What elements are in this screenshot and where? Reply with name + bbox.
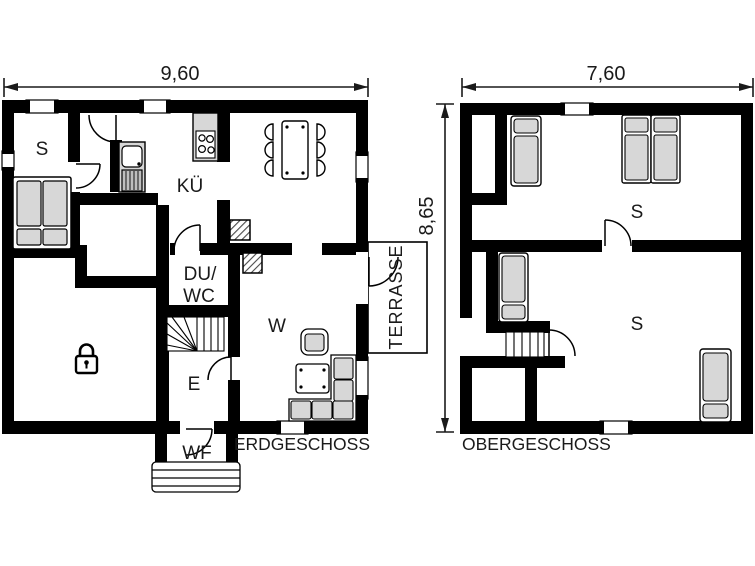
eg-width-label: 9,60 — [161, 63, 200, 85]
chair-icon — [265, 124, 273, 140]
floor-plan-svg: 9,60 8,65 — [0, 0, 755, 566]
living-furniture — [289, 329, 356, 421]
window-living-bottom — [277, 421, 308, 434]
chair-icon — [265, 142, 273, 158]
label-living: W — [268, 316, 286, 337]
window-bedroom-left — [2, 151, 14, 170]
chair-icon — [317, 160, 325, 176]
window-dining-right — [356, 152, 368, 182]
label-bedroom-eg: S — [36, 139, 49, 160]
label-windbreak: WF — [182, 443, 212, 464]
stairs-eg — [167, 317, 224, 351]
window-og-bottom — [600, 421, 632, 434]
obergeschoss-plan: 7,60 — [460, 63, 753, 454]
single-bed-right — [700, 349, 731, 422]
single-bed-niche — [511, 116, 541, 186]
floor-plan-image: 9,60 8,65 — [0, 0, 755, 566]
label-terrace: TERRASSE — [386, 244, 406, 349]
window-bedroom-top — [26, 100, 58, 113]
window-living-right — [356, 357, 368, 399]
door-og-bedrooms — [602, 220, 632, 252]
padlock-icon — [76, 345, 97, 373]
double-bed-eg — [13, 177, 71, 249]
door-shower-wc — [174, 225, 200, 251]
entry-steps — [152, 462, 240, 492]
height-label: 8,65 — [416, 197, 438, 236]
coffee-table — [296, 364, 329, 393]
double-bed-og — [622, 115, 680, 183]
window-og-top — [561, 103, 593, 115]
og-width-label: 7,60 — [587, 63, 626, 85]
erdgeschoss-plan: 9,60 8,65 — [2, 63, 454, 492]
og-wall-recess — [460, 318, 472, 356]
kitchen-stove — [193, 113, 218, 161]
window-kitchen-top — [140, 100, 170, 113]
door-hall-kitchen — [89, 115, 116, 142]
door-og-stairs — [549, 330, 575, 356]
stairs-og — [506, 332, 544, 357]
chair-icon — [265, 160, 273, 176]
dining-set — [265, 121, 325, 179]
chimney-hatch-living — [243, 253, 262, 273]
label-bedroom-og-top: S — [631, 202, 644, 223]
label-floor-og: OBERGESCHOSS — [462, 434, 611, 454]
dimension-height — [436, 104, 454, 432]
kitchen-sink — [119, 142, 145, 192]
label-entry: E — [188, 374, 201, 395]
door-bedroom — [76, 164, 100, 188]
chair-icon — [317, 124, 325, 140]
label-kitchen: KÜ — [177, 176, 203, 197]
label-shower-wc-1: DU/ — [184, 264, 217, 285]
door-entry-living — [208, 357, 231, 380]
label-floor-eg: ERDGESCHOSS — [234, 434, 370, 454]
chimney-hatch-kitchen — [230, 220, 250, 240]
single-bed-alcove — [499, 253, 528, 322]
label-shower-wc-2: WC — [183, 286, 215, 307]
chair-icon — [317, 142, 325, 158]
label-bedroom-og-bottom: S — [631, 314, 644, 335]
